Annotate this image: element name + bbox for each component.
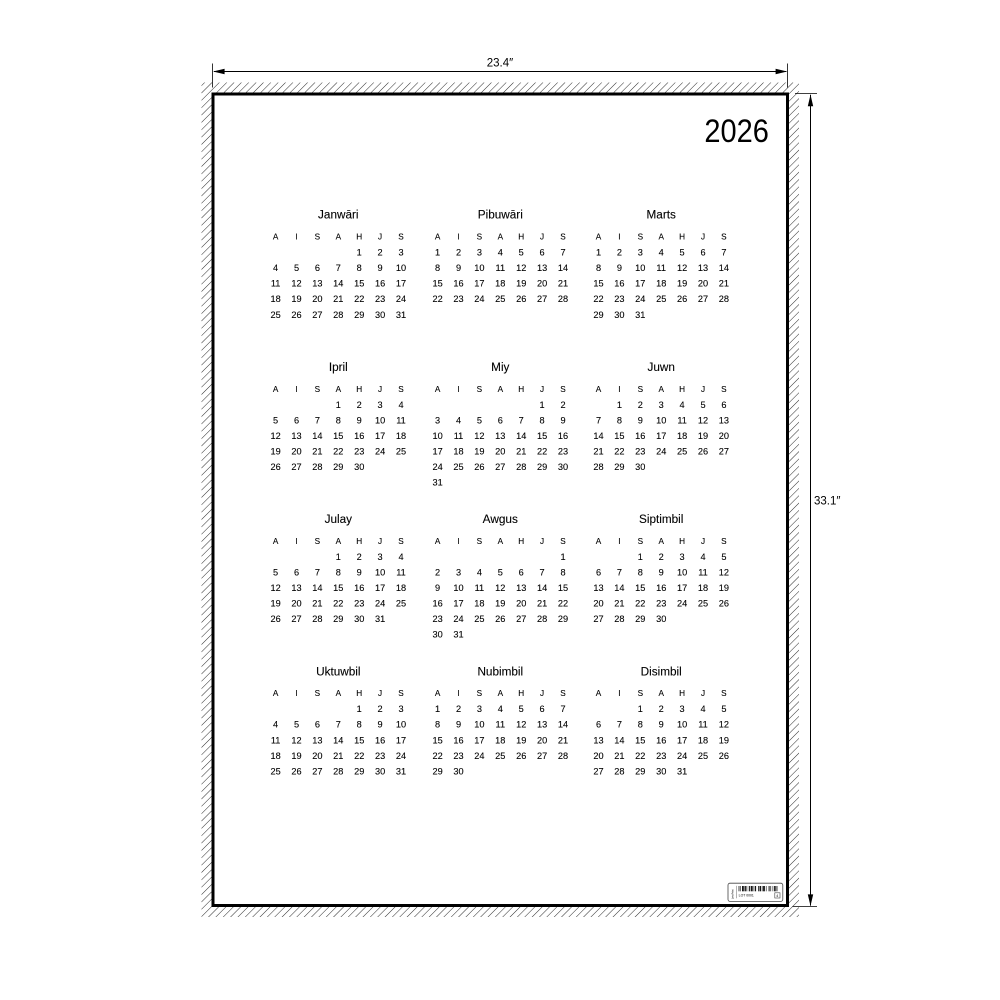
svg-text:S: S bbox=[721, 537, 727, 546]
svg-text:12: 12 bbox=[291, 735, 301, 745]
svg-text:29: 29 bbox=[593, 310, 603, 320]
svg-text:2: 2 bbox=[456, 248, 461, 258]
svg-text:J: J bbox=[378, 537, 382, 546]
svg-text:8: 8 bbox=[357, 720, 362, 730]
svg-text:20: 20 bbox=[537, 735, 547, 745]
svg-text:20: 20 bbox=[312, 294, 322, 304]
svg-text:27: 27 bbox=[537, 294, 547, 304]
svg-text:H: H bbox=[679, 233, 685, 242]
svg-text:1: 1 bbox=[357, 704, 362, 714]
svg-text:19: 19 bbox=[270, 446, 280, 456]
svg-text:I: I bbox=[457, 689, 459, 698]
svg-text:S: S bbox=[560, 689, 566, 698]
svg-text:4: 4 bbox=[273, 720, 278, 730]
svg-text:5: 5 bbox=[519, 704, 524, 714]
svg-text:19: 19 bbox=[719, 583, 729, 593]
svg-text:21: 21 bbox=[593, 446, 603, 456]
svg-text:8: 8 bbox=[435, 720, 440, 730]
svg-text:24: 24 bbox=[453, 614, 463, 624]
svg-text:15: 15 bbox=[333, 431, 343, 441]
svg-text:11: 11 bbox=[396, 568, 406, 578]
svg-text:18: 18 bbox=[677, 431, 687, 441]
svg-text:27: 27 bbox=[312, 310, 322, 320]
svg-text:9: 9 bbox=[617, 263, 622, 273]
svg-text:A: A bbox=[336, 233, 342, 242]
svg-text:22: 22 bbox=[537, 446, 547, 456]
svg-text:3: 3 bbox=[477, 248, 482, 258]
svg-text:3: 3 bbox=[638, 248, 643, 258]
svg-text:8: 8 bbox=[560, 568, 565, 578]
svg-text:3: 3 bbox=[378, 552, 383, 562]
svg-text:23: 23 bbox=[375, 751, 385, 761]
svg-text:15: 15 bbox=[432, 735, 442, 745]
svg-text:I: I bbox=[295, 385, 297, 394]
svg-text:23: 23 bbox=[558, 446, 568, 456]
svg-text:8: 8 bbox=[336, 568, 341, 578]
svg-text:A: A bbox=[273, 689, 279, 698]
svg-text:16: 16 bbox=[656, 583, 666, 593]
svg-text:S: S bbox=[560, 537, 566, 546]
svg-text:2: 2 bbox=[617, 248, 622, 258]
svg-text:13: 13 bbox=[698, 263, 708, 273]
svg-text:31: 31 bbox=[396, 310, 406, 320]
svg-text:28: 28 bbox=[333, 310, 343, 320]
svg-text:24: 24 bbox=[474, 294, 484, 304]
svg-text:29: 29 bbox=[354, 310, 364, 320]
svg-text:A: A bbox=[498, 233, 504, 242]
svg-text:18: 18 bbox=[656, 279, 666, 289]
svg-text:17: 17 bbox=[635, 279, 645, 289]
svg-text:2: 2 bbox=[357, 400, 362, 410]
svg-text:1: 1 bbox=[336, 552, 341, 562]
svg-text:4: 4 bbox=[680, 400, 685, 410]
svg-text:24: 24 bbox=[432, 462, 442, 472]
svg-text:S: S bbox=[398, 537, 404, 546]
svg-text:7: 7 bbox=[315, 568, 320, 578]
svg-text:24: 24 bbox=[656, 446, 666, 456]
svg-text:21: 21 bbox=[719, 279, 729, 289]
svg-text:A: A bbox=[273, 385, 279, 394]
svg-text:1: 1 bbox=[560, 552, 565, 562]
svg-text:2: 2 bbox=[435, 568, 440, 578]
svg-text:6: 6 bbox=[596, 568, 601, 578]
svg-text:S: S bbox=[638, 537, 644, 546]
svg-text:13: 13 bbox=[495, 431, 505, 441]
svg-text:7: 7 bbox=[336, 263, 341, 273]
svg-text:3: 3 bbox=[680, 704, 685, 714]
svg-text:21: 21 bbox=[614, 599, 624, 609]
svg-text:22: 22 bbox=[354, 294, 364, 304]
svg-text:J: J bbox=[378, 385, 382, 394]
svg-text:29: 29 bbox=[333, 614, 343, 624]
svg-text:23: 23 bbox=[453, 751, 463, 761]
svg-text:28: 28 bbox=[537, 614, 547, 624]
svg-text:S: S bbox=[560, 385, 566, 394]
svg-text:7: 7 bbox=[560, 704, 565, 714]
svg-text:8: 8 bbox=[638, 720, 643, 730]
svg-text:S: S bbox=[638, 689, 644, 698]
svg-text:6: 6 bbox=[540, 248, 545, 258]
svg-text:16: 16 bbox=[656, 735, 666, 745]
svg-text:J: J bbox=[540, 233, 544, 242]
svg-text:25: 25 bbox=[270, 310, 280, 320]
svg-text:Miy: Miy bbox=[491, 361, 509, 374]
svg-text:12: 12 bbox=[677, 263, 687, 273]
svg-text:21: 21 bbox=[312, 599, 322, 609]
svg-text:A: A bbox=[596, 537, 602, 546]
svg-text:25: 25 bbox=[396, 446, 406, 456]
svg-text:J: J bbox=[378, 233, 382, 242]
svg-text:28: 28 bbox=[558, 751, 568, 761]
svg-text:27: 27 bbox=[593, 614, 603, 624]
svg-text:31: 31 bbox=[635, 310, 645, 320]
svg-text:29: 29 bbox=[537, 462, 547, 472]
svg-text:6: 6 bbox=[721, 400, 726, 410]
svg-text:9: 9 bbox=[435, 583, 440, 593]
svg-text:19: 19 bbox=[495, 599, 505, 609]
svg-text:5: 5 bbox=[721, 704, 726, 714]
svg-text:5: 5 bbox=[519, 248, 524, 258]
svg-text:I: I bbox=[618, 233, 620, 242]
svg-text:2026: 2026 bbox=[704, 114, 768, 150]
svg-text:A: A bbox=[498, 385, 504, 394]
svg-text:1: 1 bbox=[638, 704, 643, 714]
svg-text:16: 16 bbox=[453, 279, 463, 289]
svg-text:27: 27 bbox=[537, 751, 547, 761]
svg-text:10: 10 bbox=[396, 720, 406, 730]
svg-text:20: 20 bbox=[291, 599, 301, 609]
svg-text:Uktuwbil: Uktuwbil bbox=[316, 665, 360, 678]
svg-text:H: H bbox=[356, 689, 362, 698]
svg-text:S: S bbox=[315, 689, 321, 698]
svg-text:23: 23 bbox=[453, 294, 463, 304]
svg-text:2: 2 bbox=[659, 704, 664, 714]
svg-text:Siptimbil: Siptimbil bbox=[639, 513, 683, 526]
svg-text:12: 12 bbox=[516, 720, 526, 730]
svg-text:16: 16 bbox=[375, 735, 385, 745]
svg-text:18: 18 bbox=[396, 431, 406, 441]
svg-text:5: 5 bbox=[721, 552, 726, 562]
svg-text:13: 13 bbox=[291, 431, 301, 441]
svg-text:3: 3 bbox=[398, 704, 403, 714]
svg-text:28: 28 bbox=[614, 614, 624, 624]
svg-text:15: 15 bbox=[635, 583, 645, 593]
svg-text:13: 13 bbox=[593, 583, 603, 593]
svg-text:1: 1 bbox=[540, 400, 545, 410]
svg-text:A: A bbox=[596, 689, 602, 698]
svg-text:J: J bbox=[540, 537, 544, 546]
svg-text:A: A bbox=[596, 385, 602, 394]
svg-text:19: 19 bbox=[474, 446, 484, 456]
svg-text:2: 2 bbox=[357, 552, 362, 562]
svg-text:3: 3 bbox=[659, 400, 664, 410]
svg-text:1: 1 bbox=[435, 248, 440, 258]
svg-text:5: 5 bbox=[294, 263, 299, 273]
svg-text:30: 30 bbox=[375, 766, 385, 776]
svg-text:22: 22 bbox=[593, 294, 603, 304]
svg-text:25: 25 bbox=[656, 294, 666, 304]
svg-text:22: 22 bbox=[558, 599, 568, 609]
svg-text:15: 15 bbox=[537, 431, 547, 441]
svg-text:J: J bbox=[701, 385, 705, 394]
svg-text:15: 15 bbox=[354, 279, 364, 289]
svg-text:10: 10 bbox=[453, 583, 463, 593]
svg-text:Juwn: Juwn bbox=[647, 361, 674, 374]
svg-text:18: 18 bbox=[495, 279, 505, 289]
svg-text:10: 10 bbox=[474, 263, 484, 273]
svg-text:1: 1 bbox=[638, 552, 643, 562]
svg-text:27: 27 bbox=[719, 446, 729, 456]
svg-text:8: 8 bbox=[357, 263, 362, 273]
svg-text:6: 6 bbox=[700, 248, 705, 258]
svg-text:21: 21 bbox=[333, 751, 343, 761]
svg-text:4: 4 bbox=[498, 248, 503, 258]
svg-text:17: 17 bbox=[677, 735, 687, 745]
svg-text:11: 11 bbox=[496, 720, 506, 730]
svg-text:I: I bbox=[295, 233, 297, 242]
svg-text:26: 26 bbox=[516, 751, 526, 761]
svg-text:12: 12 bbox=[516, 263, 526, 273]
svg-text:16: 16 bbox=[453, 735, 463, 745]
svg-text:11: 11 bbox=[454, 431, 464, 441]
svg-text:6: 6 bbox=[294, 415, 299, 425]
svg-text:23: 23 bbox=[656, 599, 666, 609]
svg-text:Disimbil: Disimbil bbox=[641, 665, 682, 678]
svg-text:8: 8 bbox=[435, 263, 440, 273]
svg-text:A: A bbox=[658, 689, 664, 698]
svg-text:16: 16 bbox=[614, 279, 624, 289]
svg-text:19: 19 bbox=[698, 431, 708, 441]
svg-text:18: 18 bbox=[453, 446, 463, 456]
svg-text:31: 31 bbox=[677, 766, 687, 776]
svg-text:J: J bbox=[701, 689, 705, 698]
svg-text:S: S bbox=[477, 537, 483, 546]
svg-text:3: 3 bbox=[435, 415, 440, 425]
svg-text:4: 4 bbox=[273, 263, 278, 273]
svg-text:30: 30 bbox=[656, 766, 666, 776]
svg-text:Pibuwāri: Pibuwāri bbox=[478, 209, 523, 222]
svg-text:7: 7 bbox=[596, 415, 601, 425]
svg-text:21: 21 bbox=[537, 599, 547, 609]
svg-text:1: 1 bbox=[435, 704, 440, 714]
svg-text:24: 24 bbox=[396, 294, 406, 304]
svg-text:A: A bbox=[336, 385, 342, 394]
svg-text:26: 26 bbox=[291, 310, 301, 320]
svg-text:I: I bbox=[618, 689, 620, 698]
svg-text:16: 16 bbox=[354, 431, 364, 441]
svg-text:11: 11 bbox=[698, 720, 708, 730]
svg-text:25: 25 bbox=[698, 751, 708, 761]
svg-text:10: 10 bbox=[474, 720, 484, 730]
svg-text:12: 12 bbox=[291, 279, 301, 289]
svg-text:19: 19 bbox=[291, 294, 301, 304]
svg-text:10: 10 bbox=[375, 415, 385, 425]
svg-text:21: 21 bbox=[516, 446, 526, 456]
svg-text:H: H bbox=[679, 537, 685, 546]
svg-text:23: 23 bbox=[656, 751, 666, 761]
svg-text:A: A bbox=[435, 385, 441, 394]
svg-text:S: S bbox=[721, 233, 727, 242]
svg-text:24: 24 bbox=[375, 599, 385, 609]
svg-text:5: 5 bbox=[680, 248, 685, 258]
svg-text:LetsPrint: LetsPrint bbox=[730, 889, 734, 900]
svg-text:24: 24 bbox=[396, 751, 406, 761]
svg-text:S: S bbox=[315, 233, 321, 242]
svg-text:14: 14 bbox=[312, 583, 322, 593]
svg-text:9: 9 bbox=[456, 720, 461, 730]
svg-text:12: 12 bbox=[270, 431, 280, 441]
svg-text:30: 30 bbox=[432, 630, 442, 640]
svg-text:H: H bbox=[356, 537, 362, 546]
svg-text:A: A bbox=[435, 689, 441, 698]
svg-text:7: 7 bbox=[315, 415, 320, 425]
svg-text:13: 13 bbox=[312, 279, 322, 289]
svg-text:9: 9 bbox=[378, 720, 383, 730]
svg-text:18: 18 bbox=[270, 294, 280, 304]
svg-text:17: 17 bbox=[396, 735, 406, 745]
svg-text:5: 5 bbox=[273, 415, 278, 425]
svg-text:Marts: Marts bbox=[647, 209, 677, 222]
svg-text:H: H bbox=[518, 537, 524, 546]
svg-text:26: 26 bbox=[495, 614, 505, 624]
svg-text:S: S bbox=[398, 385, 404, 394]
svg-text:17: 17 bbox=[453, 599, 463, 609]
svg-text:7: 7 bbox=[560, 248, 565, 258]
svg-text:5: 5 bbox=[477, 415, 482, 425]
svg-text:A: A bbox=[596, 233, 602, 242]
svg-text:19: 19 bbox=[516, 279, 526, 289]
svg-text:28: 28 bbox=[558, 294, 568, 304]
svg-text:17: 17 bbox=[656, 431, 666, 441]
svg-text:23: 23 bbox=[354, 446, 364, 456]
svg-text:A: A bbox=[273, 233, 279, 242]
svg-text:25: 25 bbox=[495, 294, 505, 304]
svg-text:2: 2 bbox=[659, 552, 664, 562]
svg-text:21: 21 bbox=[558, 735, 568, 745]
svg-text:26: 26 bbox=[474, 462, 484, 472]
svg-text:21: 21 bbox=[333, 294, 343, 304]
svg-text:A: A bbox=[658, 537, 664, 546]
svg-text:26: 26 bbox=[719, 599, 729, 609]
svg-text:S: S bbox=[398, 233, 404, 242]
svg-text:19: 19 bbox=[719, 735, 729, 745]
svg-text:11: 11 bbox=[396, 415, 406, 425]
svg-text:4: 4 bbox=[498, 704, 503, 714]
svg-text:9: 9 bbox=[659, 720, 664, 730]
svg-text:25: 25 bbox=[474, 614, 484, 624]
svg-text:12: 12 bbox=[270, 583, 280, 593]
svg-text:3: 3 bbox=[680, 552, 685, 562]
svg-text:7: 7 bbox=[617, 720, 622, 730]
svg-text:12: 12 bbox=[719, 568, 729, 578]
svg-text:3: 3 bbox=[398, 248, 403, 258]
svg-text:20: 20 bbox=[516, 599, 526, 609]
svg-text:4: 4 bbox=[659, 248, 664, 258]
svg-text:14: 14 bbox=[719, 263, 729, 273]
svg-text:29: 29 bbox=[558, 614, 568, 624]
svg-text:20: 20 bbox=[593, 599, 603, 609]
svg-text:27: 27 bbox=[495, 462, 505, 472]
svg-text:18: 18 bbox=[270, 751, 280, 761]
svg-text:27: 27 bbox=[516, 614, 526, 624]
svg-text:16: 16 bbox=[635, 431, 645, 441]
svg-text:J: J bbox=[540, 385, 544, 394]
svg-text:6: 6 bbox=[315, 720, 320, 730]
svg-text:A: A bbox=[658, 233, 664, 242]
svg-text:I: I bbox=[618, 385, 620, 394]
svg-text:Awgus: Awgus bbox=[483, 513, 518, 526]
svg-text:14: 14 bbox=[614, 735, 624, 745]
svg-text:31: 31 bbox=[432, 478, 442, 488]
svg-text:8: 8 bbox=[596, 263, 601, 273]
svg-text:29: 29 bbox=[432, 766, 442, 776]
svg-text:2: 2 bbox=[378, 704, 383, 714]
svg-text:22: 22 bbox=[354, 751, 364, 761]
svg-text:2: 2 bbox=[638, 400, 643, 410]
svg-text:5: 5 bbox=[498, 568, 503, 578]
svg-text:17: 17 bbox=[677, 583, 687, 593]
svg-text:18: 18 bbox=[698, 735, 708, 745]
svg-text:14: 14 bbox=[537, 583, 547, 593]
svg-text:1: 1 bbox=[357, 248, 362, 258]
svg-text:A: A bbox=[336, 537, 342, 546]
svg-text:12: 12 bbox=[719, 720, 729, 730]
svg-text:21: 21 bbox=[312, 446, 322, 456]
svg-text:13: 13 bbox=[593, 735, 603, 745]
svg-text:7: 7 bbox=[721, 248, 726, 258]
svg-text:24: 24 bbox=[635, 294, 645, 304]
svg-text:31: 31 bbox=[453, 630, 463, 640]
svg-text:25: 25 bbox=[396, 599, 406, 609]
svg-text:11: 11 bbox=[475, 583, 485, 593]
svg-text:Janwāri: Janwāri bbox=[318, 209, 358, 222]
svg-text:29: 29 bbox=[635, 766, 645, 776]
svg-text:30: 30 bbox=[635, 462, 645, 472]
svg-text:20: 20 bbox=[495, 446, 505, 456]
svg-text:I: I bbox=[457, 537, 459, 546]
svg-text:H: H bbox=[679, 385, 685, 394]
svg-text:J: J bbox=[540, 689, 544, 698]
svg-text:H: H bbox=[518, 233, 524, 242]
svg-text:17: 17 bbox=[396, 279, 406, 289]
svg-text:28: 28 bbox=[312, 614, 322, 624]
svg-text:28: 28 bbox=[593, 462, 603, 472]
svg-text:8: 8 bbox=[638, 568, 643, 578]
svg-text:11: 11 bbox=[677, 415, 687, 425]
svg-text:26: 26 bbox=[677, 294, 687, 304]
svg-text:12: 12 bbox=[474, 431, 484, 441]
svg-text:20: 20 bbox=[312, 751, 322, 761]
svg-text:I: I bbox=[618, 537, 620, 546]
svg-text:23: 23 bbox=[432, 614, 442, 624]
svg-text:24: 24 bbox=[474, 751, 484, 761]
svg-text:H: H bbox=[356, 233, 362, 242]
svg-text:6: 6 bbox=[498, 415, 503, 425]
svg-text:24: 24 bbox=[677, 599, 687, 609]
svg-text:23: 23 bbox=[614, 294, 624, 304]
svg-text:I: I bbox=[457, 385, 459, 394]
svg-text:28: 28 bbox=[614, 766, 624, 776]
svg-text:2: 2 bbox=[378, 248, 383, 258]
svg-text:13: 13 bbox=[537, 263, 547, 273]
svg-text:21: 21 bbox=[558, 279, 568, 289]
svg-text:6: 6 bbox=[315, 263, 320, 273]
svg-text:S: S bbox=[477, 689, 483, 698]
svg-text:18: 18 bbox=[396, 583, 406, 593]
svg-text:4: 4 bbox=[776, 894, 778, 898]
svg-text:4: 4 bbox=[398, 400, 403, 410]
svg-text:A: A bbox=[273, 537, 279, 546]
